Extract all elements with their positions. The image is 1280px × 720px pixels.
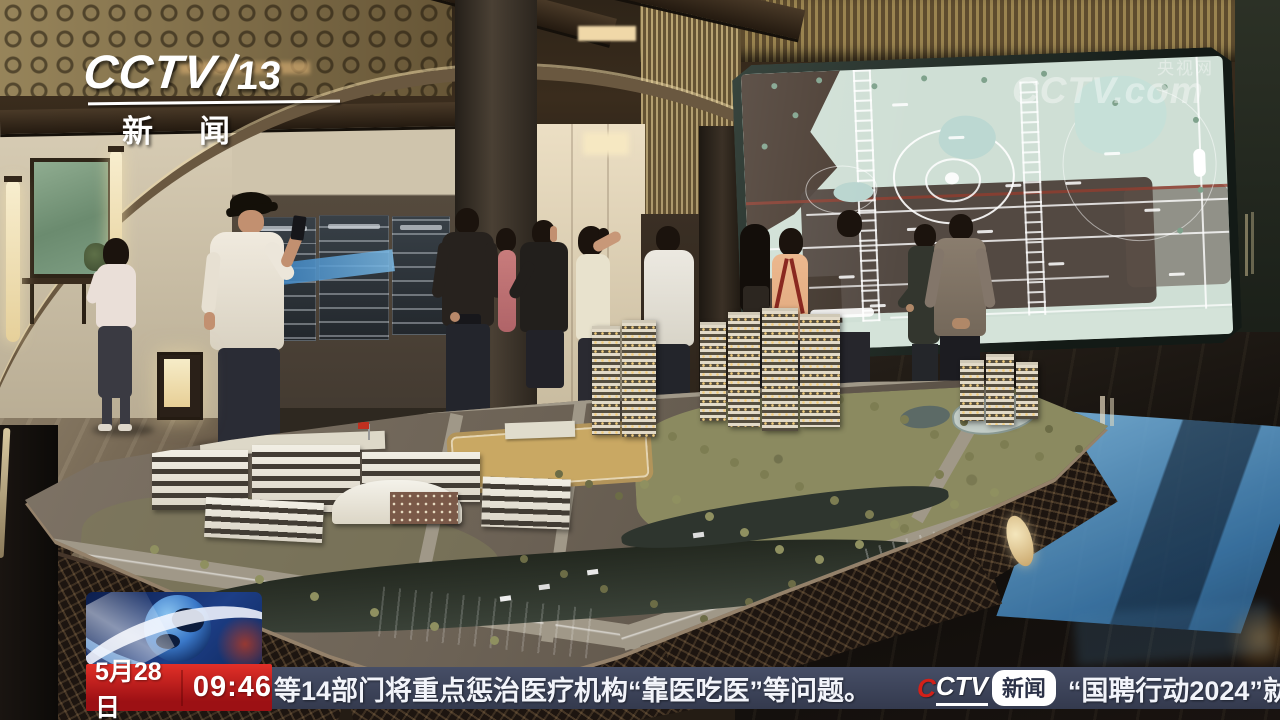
model-low-buildings <box>505 421 576 439</box>
channel-bug-label: 新闻 <box>122 106 276 151</box>
model-brick-building <box>390 492 458 524</box>
ceiling-light-strip <box>578 26 636 41</box>
datetime-divider <box>181 670 183 706</box>
model-tower <box>1016 362 1038 419</box>
ticker-bar: 等14部门将重点惩治医疗机构“靠医吃医”等问题。 C CTV 新闻 “国聘行动2… <box>272 667 1280 709</box>
date-label: 5月28日 <box>95 652 173 720</box>
model-flag <box>358 422 369 429</box>
time-label: 09:46 <box>193 671 272 704</box>
model-tower <box>986 354 1014 425</box>
foreground-table-corner <box>0 425 58 720</box>
floor-reflection <box>1110 398 1114 426</box>
model-tower <box>762 308 798 431</box>
ticker-logo-red-c: C <box>917 673 936 704</box>
floor-lantern <box>157 352 203 420</box>
phone <box>290 215 306 241</box>
datetime-panel: 5月28日 09:46 <box>86 664 272 711</box>
model-trees <box>668 432 677 441</box>
model-tower <box>622 320 656 437</box>
channel-bug-number: 13 <box>234 54 283 99</box>
ticker-cctv-logo: C CTV 新闻 <box>917 670 1056 706</box>
model-trees <box>640 480 649 489</box>
model-tower <box>700 322 726 421</box>
model-tower <box>592 326 620 435</box>
channel-bug-underline <box>88 100 340 106</box>
ticker-logo-badge: 新闻 <box>992 670 1056 706</box>
wall-light-detail <box>1251 212 1254 274</box>
watermark: 央视网 CCTV.com <box>1012 50 1252 116</box>
watermark-url: CCTV.com <box>1012 70 1204 112</box>
news-frame: CCTV 13 新闻 央视网 CCTV.com 5月28日 09:46 等14部… <box>0 0 1280 720</box>
model-trees <box>555 470 563 478</box>
console-leg <box>82 284 86 324</box>
tube-lamp <box>6 180 20 342</box>
model-school-building <box>481 476 571 529</box>
person-woman-left <box>88 238 150 434</box>
channel-bug-network: CCTV <box>81 44 219 99</box>
model-school-building <box>204 497 324 543</box>
model-tower <box>728 312 760 427</box>
tube-lamp-cap <box>4 176 22 182</box>
console-leg <box>30 284 34 324</box>
floor-reflection <box>1100 396 1105 426</box>
model-tower <box>960 360 984 421</box>
model-tower <box>800 314 840 427</box>
wall-light-detail <box>1245 214 1248 276</box>
ticker-headline-2: “国聘行动2024”就业 <box>1068 669 1280 708</box>
channel-bug: CCTV 13 新闻 <box>84 44 364 140</box>
ticker-headline-1: 等14部门将重点惩治医疗机构“靠医吃医”等问题。 <box>274 669 871 708</box>
ticker-logo-white: CTV <box>936 671 988 706</box>
wall-light-glow <box>583 132 629 155</box>
